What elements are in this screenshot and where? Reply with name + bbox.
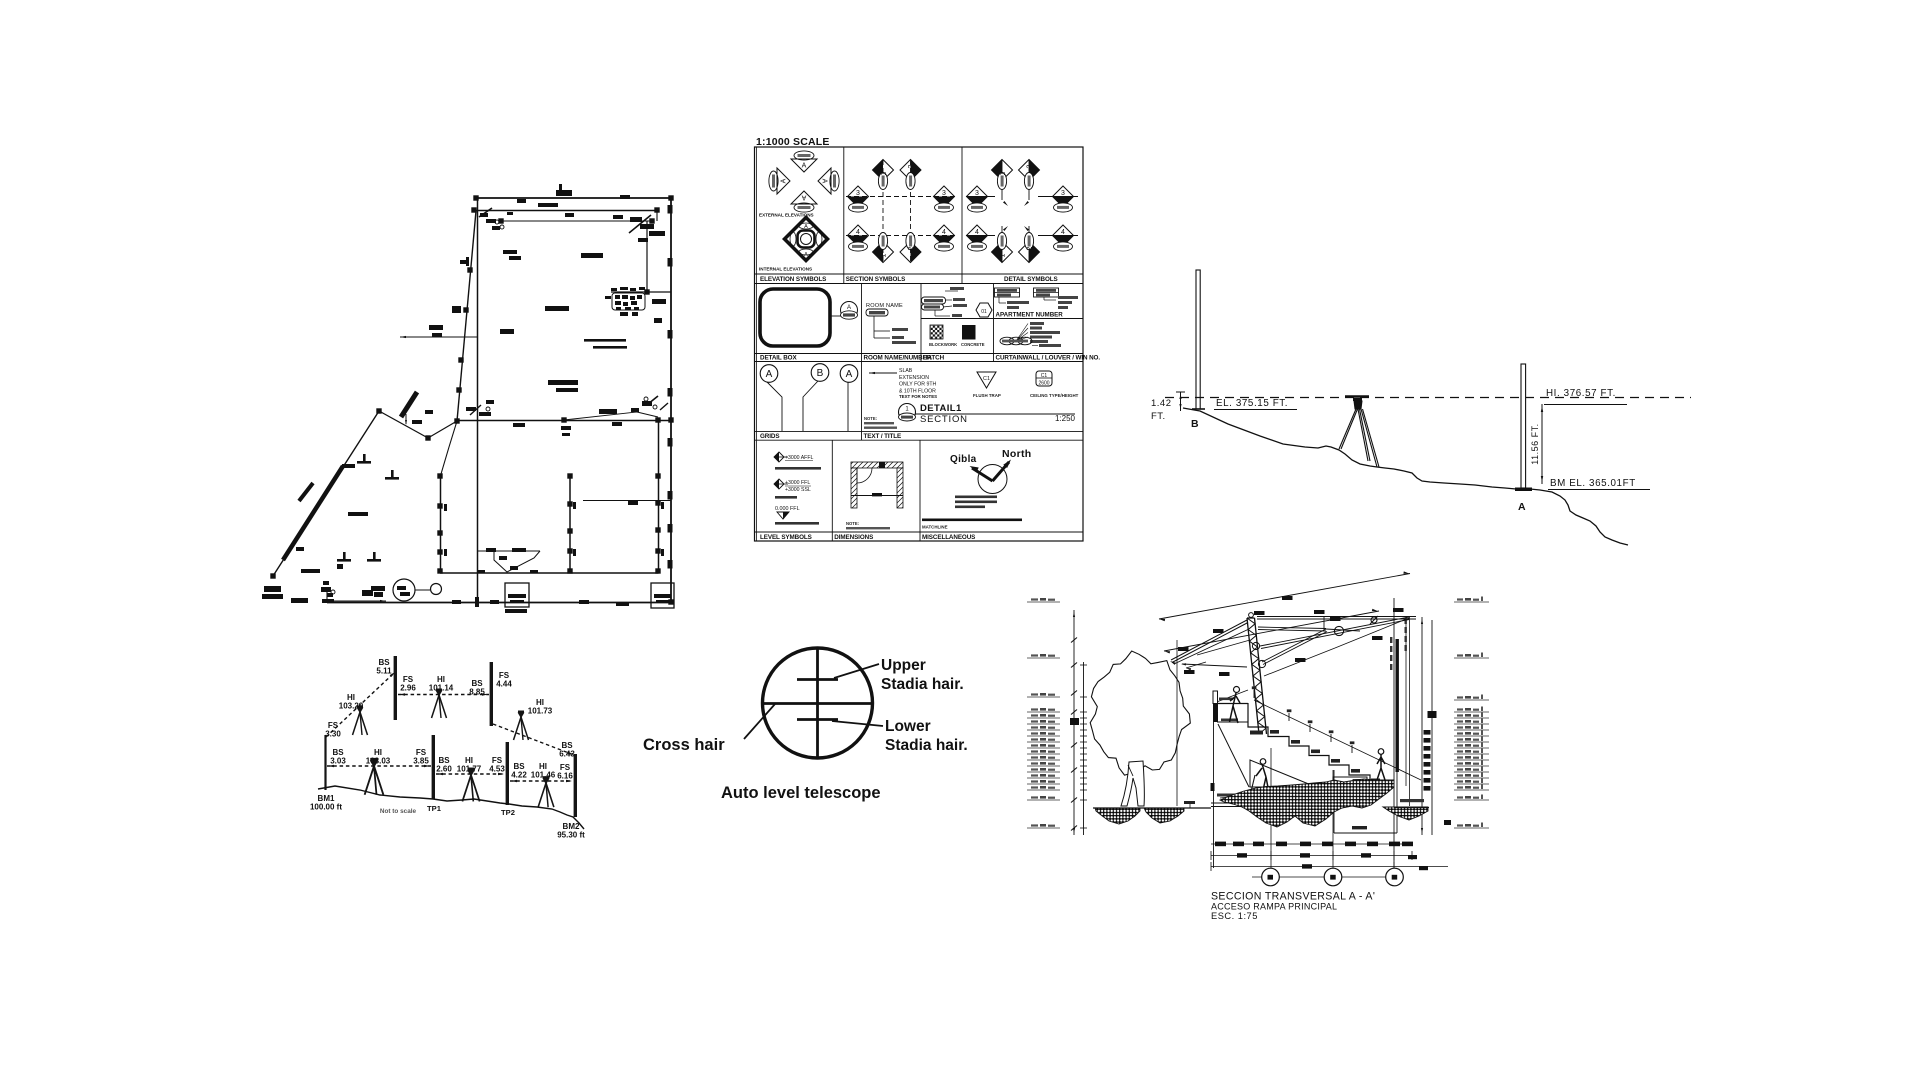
svg-text:+3000 AFFL: +3000 AFFL — [785, 455, 814, 461]
svg-text:A: A — [802, 163, 807, 170]
svg-text:Lower: Lower — [885, 718, 931, 735]
svg-text:BLOCKWORK: BLOCKWORK — [929, 342, 957, 347]
svg-text:Stadia hair.: Stadia hair. — [881, 676, 964, 693]
svg-text:2.96: 2.96 — [400, 684, 416, 693]
svg-text:FLUSH TRAP: FLUSH TRAP — [973, 393, 1001, 398]
svg-text:TP2: TP2 — [501, 808, 515, 817]
svg-text:DIMENSIONS: DIMENSIONS — [834, 534, 873, 541]
svg-text:North: North — [1002, 448, 1032, 460]
svg-text:1:250: 1:250 — [1055, 414, 1076, 423]
svg-text:B: B — [1191, 418, 1199, 430]
svg-text:+3000 SSL: +3000 SSL — [785, 487, 811, 493]
svg-text:2: 2 — [908, 246, 915, 250]
svg-text:ACCESO RAMPA PRINCIPAL: ACCESO RAMPA PRINCIPAL — [1211, 902, 1337, 912]
svg-text:8.85: 8.85 — [469, 688, 485, 697]
svg-text:5.11: 5.11 — [376, 667, 392, 676]
svg-text:SECTION: SECTION — [920, 414, 968, 425]
svg-text:A: A — [781, 178, 788, 183]
svg-text:DETAIL SYMBOLS: DETAIL SYMBOLS — [1004, 276, 1058, 283]
svg-text:100.00 ft: 100.00 ft — [310, 803, 342, 812]
svg-text:3: 3 — [856, 190, 860, 197]
svg-text:HATCH: HATCH — [923, 355, 945, 362]
svg-text:4: 4 — [942, 229, 946, 236]
svg-text:1.42: 1.42 — [1151, 398, 1172, 409]
svg-text:B: B — [817, 368, 824, 379]
svg-text:CONCRETE: CONCRETE — [961, 342, 985, 347]
svg-text:4: 4 — [856, 229, 860, 236]
svg-text:3: 3 — [975, 190, 979, 197]
svg-text:A: A — [804, 224, 808, 230]
svg-text:EXTENSION: EXTENSION — [899, 375, 929, 381]
svg-text:ROOM NAME: ROOM NAME — [866, 303, 903, 309]
svg-text:101.73: 101.73 — [528, 707, 553, 716]
svg-text:ELEVATION SYMBOLS: ELEVATION SYMBOLS — [760, 276, 826, 283]
svg-text:HI. 376.57 FT.: HI. 376.57 FT. — [1546, 388, 1616, 399]
svg-text:NOTE:: NOTE: — [846, 521, 859, 526]
svg-text:A: A — [1518, 501, 1526, 513]
svg-text:MISCELLANEOUS: MISCELLANEOUS — [922, 534, 975, 541]
svg-text:SECTION SYMBOLS: SECTION SYMBOLS — [846, 276, 905, 283]
svg-text:SLAB: SLAB — [899, 368, 913, 374]
svg-text:TP1: TP1 — [427, 804, 442, 813]
svg-text:6.43: 6.43 — [559, 750, 575, 759]
svg-text:101.77: 101.77 — [457, 765, 482, 774]
svg-text:1: 1 — [1000, 171, 1007, 175]
svg-text:2.60: 2.60 — [436, 765, 452, 774]
svg-text:4.44: 4.44 — [496, 680, 512, 689]
svg-text:Qibla: Qibla — [950, 454, 977, 465]
svg-text:103.29: 103.29 — [339, 702, 364, 711]
svg-text:GRIDS: GRIDS — [760, 433, 779, 440]
svg-text:Upper: Upper — [881, 657, 926, 674]
svg-text:0.000 FFL: 0.000 FFL — [775, 506, 800, 512]
svg-text:APARTMENT NUMBER: APARTMENT NUMBER — [996, 312, 1064, 319]
svg-text:FT.: FT. — [1151, 411, 1166, 422]
svg-text:3: 3 — [1061, 190, 1065, 197]
svg-text:TEXT FOR NOTES: TEXT FOR NOTES — [899, 394, 937, 399]
svg-text:DETAIL BOX: DETAIL BOX — [760, 355, 797, 362]
svg-text:TEXT / TITLE: TEXT / TITLE — [864, 433, 902, 440]
svg-text:DETAIL1: DETAIL1 — [920, 403, 962, 414]
svg-text:2: 2 — [908, 164, 915, 168]
svg-text:CURTAINWALL / LOUVER / WIN NO.: CURTAINWALL / LOUVER / WIN NO. — [996, 355, 1101, 362]
svg-text:Cross hair: Cross hair — [643, 736, 725, 754]
svg-text:3.85: 3.85 — [413, 757, 429, 766]
svg-text:2: 2 — [1027, 246, 1034, 250]
svg-text:95.30 ft: 95.30 ft — [557, 831, 585, 840]
svg-text:3.30: 3.30 — [325, 730, 341, 739]
svg-text:01: 01 — [981, 309, 987, 315]
svg-text:4.53: 4.53 — [489, 765, 505, 774]
svg-text:4: 4 — [1061, 229, 1065, 236]
svg-text:1: 1 — [1000, 253, 1007, 257]
svg-text:A: A — [801, 194, 806, 201]
svg-text:A: A — [804, 252, 808, 258]
svg-text:2600: 2600 — [1038, 381, 1049, 387]
svg-text:+3000 FFL: +3000 FFL — [785, 480, 810, 486]
svg-text:4.22: 4.22 — [511, 771, 527, 780]
svg-text:101.14: 101.14 — [429, 684, 454, 693]
svg-text:ESC. 1:75: ESC. 1:75 — [1211, 911, 1258, 921]
svg-text:Not to scale: Not to scale — [380, 808, 417, 815]
svg-text:INTERNAL ELEVATIONS: INTERNAL ELEVATIONS — [759, 267, 812, 272]
svg-text:103.03: 103.03 — [366, 757, 391, 766]
svg-text:11.56 FT.: 11.56 FT. — [1530, 423, 1540, 464]
svg-text:A: A — [846, 369, 853, 380]
svg-text:Stadia hair.: Stadia hair. — [885, 737, 968, 754]
svg-text:NOTE:: NOTE: — [864, 416, 877, 421]
svg-text:C1: C1 — [1041, 373, 1048, 379]
svg-text:101.46: 101.46 — [531, 771, 556, 780]
svg-text:CEILING TYPE/HEIGHT: CEILING TYPE/HEIGHT — [1030, 393, 1079, 398]
svg-text:1: 1 — [881, 253, 888, 257]
svg-text:3.03: 3.03 — [330, 757, 346, 766]
svg-text:3: 3 — [942, 190, 946, 197]
svg-text:A: A — [766, 369, 773, 380]
svg-text:MATCHLINE: MATCHLINE — [922, 525, 948, 530]
svg-text:A: A — [847, 305, 851, 311]
svg-text:EL. 375.15 FT.: EL. 375.15 FT. — [1216, 398, 1288, 409]
svg-text:ONLY FOR 9TH: ONLY FOR 9TH — [899, 382, 937, 388]
svg-text:Auto level telescope: Auto level telescope — [721, 784, 881, 802]
svg-text:C1: C1 — [983, 376, 990, 382]
svg-text:BM EL. 365.01FT: BM EL. 365.01FT — [1550, 478, 1636, 489]
svg-text:ROOM NAME/NUMBER: ROOM NAME/NUMBER — [864, 355, 932, 362]
svg-text:6.16: 6.16 — [557, 772, 573, 781]
svg-text:2: 2 — [1027, 164, 1034, 168]
svg-text:A: A — [821, 179, 828, 184]
svg-text:4: 4 — [975, 229, 979, 236]
svg-text:LEVEL SYMBOLS: LEVEL SYMBOLS — [760, 534, 812, 541]
svg-text:1:1000 SCALE: 1:1000 SCALE — [756, 136, 830, 148]
svg-text:1: 1 — [881, 171, 888, 175]
